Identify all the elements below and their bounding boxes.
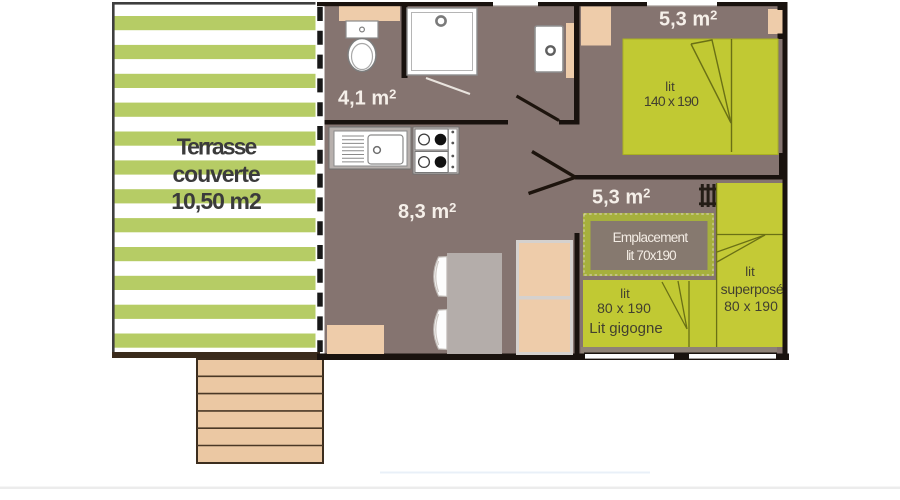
svg-text:superposé: superposé: [721, 281, 784, 297]
svg-text:8,3 m2: 8,3 m2: [398, 200, 456, 223]
svg-text:Terrasse: Terrasse: [177, 134, 257, 160]
svg-text:lit: lit: [620, 286, 630, 301]
svg-text:Lit gigogne: Lit gigogne: [589, 320, 662, 337]
svg-text:lit 70x190: lit 70x190: [626, 248, 676, 263]
svg-text:140 x 190: 140 x 190: [644, 93, 699, 109]
svg-text:5,3 m2: 5,3 m2: [592, 186, 650, 209]
svg-text:lit: lit: [745, 264, 755, 279]
svg-text:lit: lit: [665, 79, 675, 94]
svg-text:80 x 190: 80 x 190: [597, 300, 651, 316]
svg-text:couverte: couverte: [172, 161, 259, 187]
svg-text:4,1 m2: 4,1 m2: [338, 87, 396, 110]
svg-text:5,3 m2: 5,3 m2: [659, 8, 717, 31]
svg-text:Emplacement: Emplacement: [613, 230, 689, 245]
svg-text:10,50 m2: 10,50 m2: [171, 188, 261, 214]
svg-text:80 x 190: 80 x 190: [724, 298, 778, 314]
